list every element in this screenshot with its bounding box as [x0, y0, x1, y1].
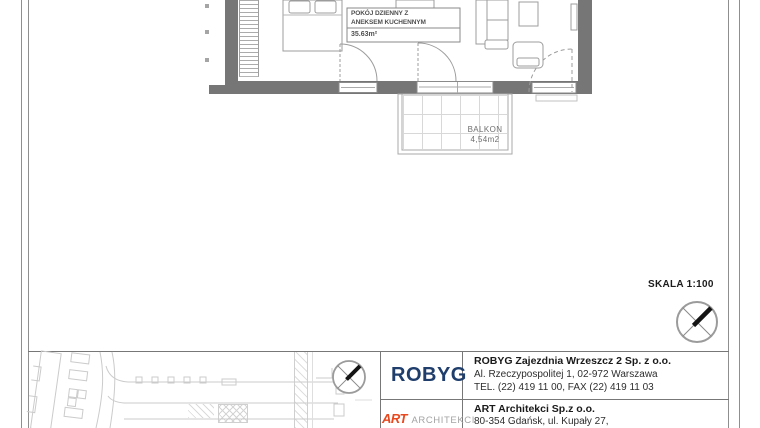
- balcony-area: 4,54m2: [450, 135, 520, 144]
- developer-company: ROBYG Zajezdnia Wrzeszcz 2 Sp. z o.o.: [474, 355, 671, 368]
- north-compass-icon: [677, 302, 717, 342]
- room-name-line1: POKÓJ DZIENNY Z: [351, 10, 408, 17]
- dimension-ticks: [205, 4, 209, 62]
- north-compass-icon: [333, 361, 365, 393]
- room-area: 35.63m²: [351, 31, 377, 38]
- art-logo-sub: ARCHITEKCI: [411, 415, 475, 426]
- art-logo-main: ART: [382, 411, 407, 426]
- balcony-name: BALKON: [450, 125, 520, 134]
- developer-contact: TEL. (22) 419 11 00, FAX (22) 419 11 03: [474, 381, 671, 394]
- architect-company: ART Architekci Sp.z o.o.: [474, 403, 609, 416]
- art-architekci-logo: ART ARCHITEKCI: [382, 410, 475, 428]
- architect-address: 80-354 Gdańsk, ul. Kupały 27,: [474, 416, 609, 428]
- robyg-logo: ROBYG: [391, 364, 467, 387]
- scale-label: SKALA 1:100: [648, 279, 714, 290]
- drawing-sheet: POKÓJ DZIENNY Z ANEKSEM KUCHENNYM 35.63m…: [0, 0, 760, 428]
- developer-address: Al. Rzeczypospolitej 1, 02-972 Warszawa: [474, 368, 671, 381]
- room-name-line2: ANEKSEM KUCHENNYM: [351, 19, 426, 26]
- balcony-railing: [398, 94, 512, 154]
- developer-info: ROBYG Zajezdnia Wrzeszcz 2 Sp. z o.o. Al…: [474, 355, 671, 394]
- siteplan-thumbnail: [25, 350, 372, 428]
- architect-info: ART Architekci Sp.z o.o. 80-354 Gdańsk, …: [474, 403, 609, 428]
